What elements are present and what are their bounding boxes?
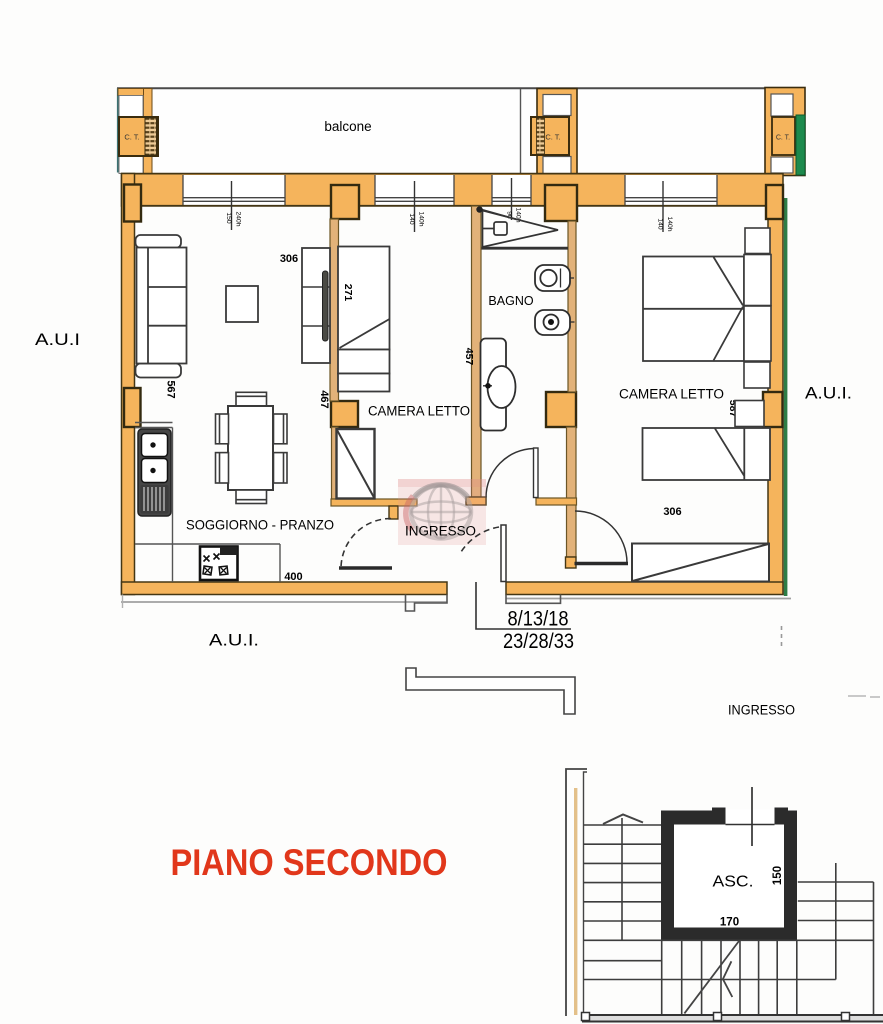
svg-text:457: 457 — [463, 348, 475, 366]
svg-text:CAMERA LETTO: CAMERA LETTO — [368, 404, 470, 419]
svg-text:balcone: balcone — [324, 119, 371, 134]
svg-text:C. T.: C. T. — [545, 133, 560, 142]
svg-text:150: 150 — [225, 212, 232, 224]
svg-text:567: 567 — [165, 380, 177, 398]
svg-text:170: 170 — [720, 917, 739, 929]
svg-text:INGRESSO: INGRESSO — [728, 703, 795, 718]
svg-text:140: 140 — [408, 213, 415, 225]
svg-text:C. T.: C. T. — [776, 135, 790, 142]
svg-text:PIANO SECONDO: PIANO SECONDO — [171, 842, 448, 883]
svg-text:C. T.: C. T. — [124, 133, 139, 142]
svg-text:A.U.I.: A.U.I. — [209, 632, 259, 650]
svg-text:CAMERA LETTO: CAMERA LETTO — [619, 387, 724, 402]
svg-text:306: 306 — [663, 506, 681, 518]
svg-text:467: 467 — [318, 390, 330, 408]
svg-text:140h: 140h — [418, 211, 425, 226]
svg-text:SOGGIORNO - PRANZO: SOGGIORNO - PRANZO — [186, 517, 334, 533]
svg-text:140: 140 — [657, 218, 664, 230]
svg-text:8/13/18: 8/13/18 — [508, 608, 569, 631]
svg-text:400: 400 — [284, 571, 302, 583]
svg-text:150: 150 — [772, 866, 784, 885]
svg-text:240h: 240h — [235, 211, 242, 226]
svg-text:ASC.: ASC. — [713, 874, 754, 891]
svg-text:140h: 140h — [666, 216, 673, 231]
svg-text:A.U.I.: A.U.I. — [805, 385, 852, 403]
svg-text:271: 271 — [342, 284, 354, 302]
svg-text:INGRESSO: INGRESSO — [405, 524, 476, 539]
svg-text:306: 306 — [280, 253, 298, 265]
svg-text:BAGNO: BAGNO — [488, 294, 533, 308]
svg-text:A.U.I: A.U.I — [35, 331, 80, 349]
svg-text:23/28/33: 23/28/33 — [503, 630, 574, 653]
